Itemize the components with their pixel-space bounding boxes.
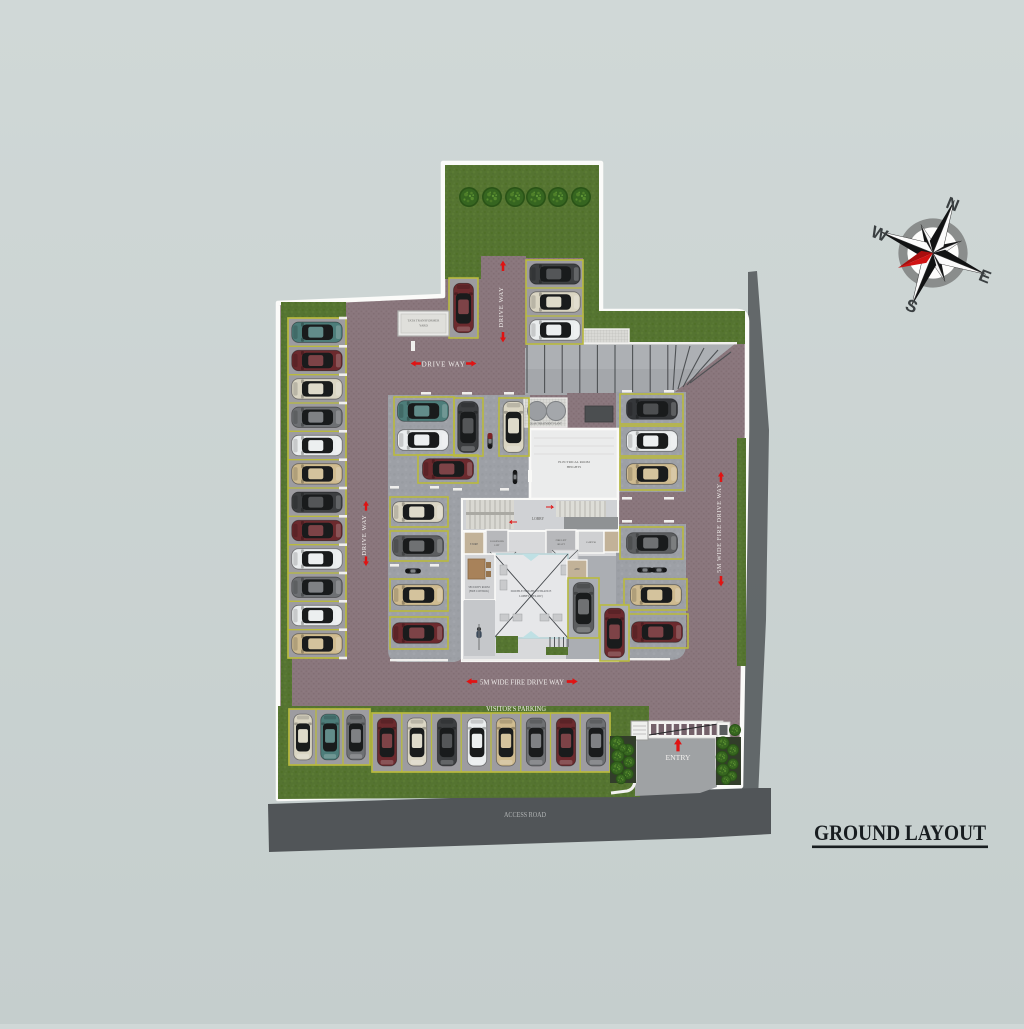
svg-text:SHAFT: SHAFT: [557, 543, 565, 546]
svg-text:AHU: AHU: [574, 568, 580, 571]
svg-text:DRIVE WAY: DRIVE WAY: [361, 515, 368, 556]
svg-text:ENTRY: ENTRY: [666, 754, 691, 762]
svg-text:SECURITY ROOM: SECURITY ROOM: [468, 586, 490, 589]
svg-text:DOUBLE HEIGHT ENTRANCE: DOUBLE HEIGHT ENTRANCE: [511, 589, 552, 593]
svg-text:STORE: STORE: [470, 543, 479, 546]
svg-text:GROUND LAYOUT: GROUND LAYOUT: [814, 820, 986, 845]
svg-text:(FIRE CONTROL): (FIRE CONTROL): [469, 590, 489, 593]
svg-text:DRIVE WAY: DRIVE WAY: [498, 287, 505, 328]
svg-text:TATA TRANSFORMER: TATA TRANSFORMER: [408, 319, 441, 323]
svg-text:PASSENGER: PASSENGER: [490, 540, 504, 543]
svg-text:5M WIDE FIRE DRIVE WAY: 5M WIDE FIRE DRIVE WAY: [716, 483, 723, 573]
svg-text:DRIVE WAY: DRIVE WAY: [422, 361, 466, 369]
svg-text:LIFT: LIFT: [494, 544, 500, 547]
svg-text:SOLAR TREATMENT PLANT: SOLAR TREATMENT PLANT: [528, 423, 562, 426]
svg-text:ACCESS ROAD: ACCESS ROAD: [504, 812, 546, 819]
svg-text:YARD: YARD: [419, 324, 428, 328]
svg-text:HEIGHTS: HEIGHTS: [567, 465, 582, 469]
svg-text:VISITOR'S PARKING: VISITOR'S PARKING: [486, 705, 546, 713]
svg-text:FIRE LIFT: FIRE LIFT: [556, 539, 567, 542]
svg-text:ELECTRICAL ROOM: ELECTRICAL ROOM: [558, 460, 590, 464]
svg-text:JANITOR: JANITOR: [586, 541, 596, 544]
svg-text:5M WIDE FIRE DRIVE WAY: 5M WIDE FIRE DRIVE WAY: [480, 679, 564, 687]
svg-text:LOBBY (BELOW): LOBBY (BELOW): [519, 594, 542, 598]
svg-text:LOBBY: LOBBY: [532, 517, 545, 521]
